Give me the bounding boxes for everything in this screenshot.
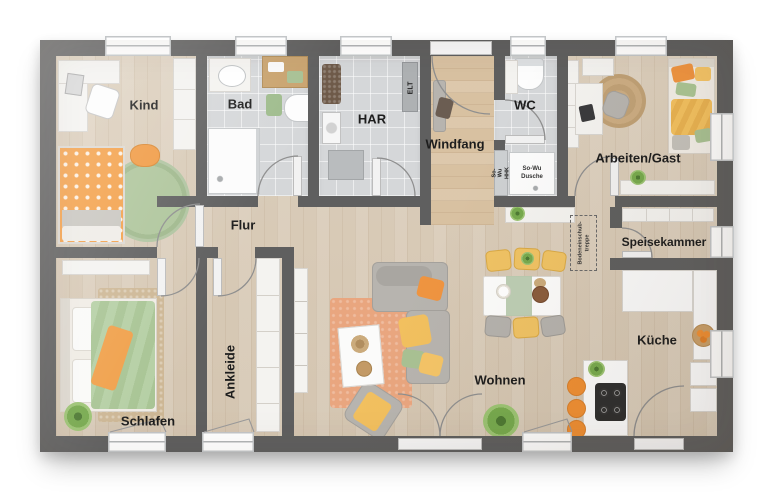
room-label-kind: Kind bbox=[130, 98, 159, 113]
room-label-wohnen: Wohnen bbox=[474, 373, 525, 388]
room-label-bad: Bad bbox=[228, 97, 253, 112]
room-label-har: HAR bbox=[358, 112, 386, 127]
bodeneinschubtreppe-label: Bodeneinschub- treppe bbox=[577, 221, 590, 264]
room-label-ankleide: Ankleide bbox=[223, 345, 238, 399]
room-label-wc: WC bbox=[514, 98, 536, 113]
room-label-arbeiten: Arbeiten/Gast bbox=[595, 151, 680, 166]
room-label-flur: Flur bbox=[231, 218, 256, 233]
room-label-windfang: Windfang bbox=[425, 137, 484, 152]
room-label-kueche: Küche bbox=[637, 333, 677, 348]
room-label-speisekammer: Speisekammer bbox=[622, 235, 707, 249]
floorplan-canvas: ELT So-Wu HHK So-Wu Dusche bbox=[0, 0, 775, 497]
room-label-schlafen: Schlafen bbox=[121, 414, 175, 429]
attic-stair-outline: Bodeneinschub- treppe bbox=[570, 215, 597, 271]
